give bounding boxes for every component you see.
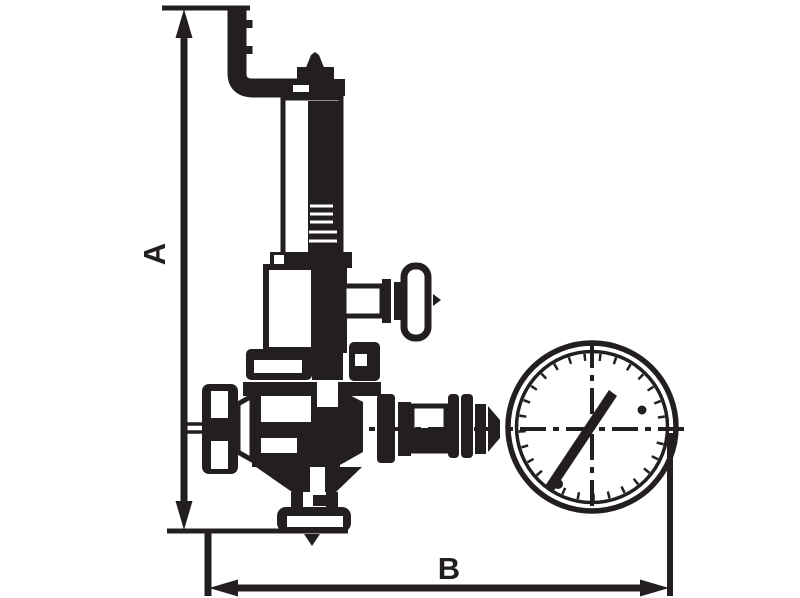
flange-tier1-right: [312, 349, 343, 380]
body-chamber-upper: [261, 396, 311, 422]
spring-housing-shade: [311, 270, 341, 347]
dimension-a-label: A: [137, 243, 172, 265]
outlet-skirt: [256, 467, 362, 492]
spring-housing: [266, 267, 344, 350]
handle-axis-tick: [433, 294, 441, 306]
inlet-flange-slot-upper: [211, 391, 228, 418]
stem-cap: [289, 52, 345, 96]
stem-cap-slot: [293, 85, 309, 92]
inlet-cone: [238, 396, 252, 460]
dimension-b-label: B: [438, 551, 460, 586]
technical-drawing-canvas: A: [0, 0, 800, 598]
body-channel: [317, 380, 338, 407]
threaded-spindle: [308, 101, 339, 253]
valve-drawing: [186, 8, 684, 546]
stem-cap-upper: [297, 67, 334, 80]
body-chamber-lower: [261, 438, 297, 453]
dimension-a-arrow-down-icon: [176, 501, 193, 530]
pressure-gauge: [336, 342, 684, 512]
lever-nub-lower: [247, 46, 253, 54]
lever-nub-upper: [247, 20, 253, 28]
gauge-scale-dot: [638, 406, 647, 415]
pipe-union-plate-2: [461, 394, 473, 458]
inlet-union: [186, 384, 252, 474]
body-flange: [243, 342, 381, 396]
outlet-neck-right: [326, 492, 338, 508]
outlet-union-slot: [287, 516, 343, 527]
handle-washer-inner: [382, 279, 391, 323]
outlet-neck-left: [291, 492, 303, 508]
pipe-cylinder-shade: [412, 428, 446, 450]
gauge-needle-pivot-dot: [553, 479, 563, 489]
t-handle-bar: [404, 266, 428, 338]
side-handle: [344, 266, 441, 338]
valve-dimension-drawing: A: [0, 0, 800, 598]
flange-bracket-hole: [355, 354, 367, 366]
bottom-outlet-union: [256, 467, 362, 546]
handle-stem: [344, 286, 382, 316]
bonnet-tube: [283, 98, 341, 255]
flow-direction-arrow-icon: [304, 534, 320, 546]
pipe-union-plate-1: [448, 394, 459, 458]
dimension-b-arrow-right-icon: [640, 580, 669, 597]
outlet-neck-plug: [313, 495, 327, 506]
flange-tier1-slot: [254, 360, 302, 373]
collar-nut-slot: [274, 255, 284, 264]
inlet-flange-slot-lower: [211, 441, 228, 469]
dimension-a-arrow-up-icon: [176, 9, 193, 38]
outlet-channel: [310, 467, 325, 492]
dimension-b-arrow-left-icon: [209, 580, 238, 597]
